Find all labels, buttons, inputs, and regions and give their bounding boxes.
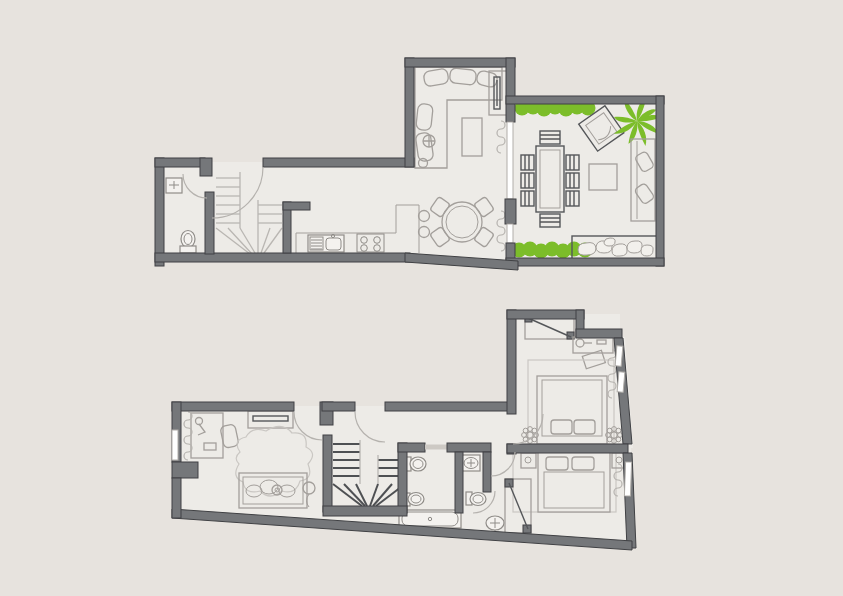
terrace-wall bbox=[506, 258, 664, 266]
terrace-wall bbox=[506, 96, 664, 104]
terrace-wall bbox=[656, 96, 664, 266]
floor-plan-canvas bbox=[0, 0, 843, 596]
wall bbox=[398, 443, 425, 452]
wall-pier bbox=[172, 462, 198, 478]
wall bbox=[155, 158, 205, 167]
door-stub bbox=[200, 158, 212, 176]
stair-wall bbox=[283, 202, 310, 210]
bedroom2-bed bbox=[538, 452, 610, 512]
stair-wall bbox=[323, 435, 332, 512]
wall bbox=[172, 402, 294, 411]
wall bbox=[385, 402, 515, 411]
master-bed bbox=[537, 376, 607, 444]
wall bbox=[576, 329, 622, 338]
wc-wall bbox=[205, 192, 214, 254]
wall-hung-toilet bbox=[466, 492, 486, 506]
kids-window bbox=[172, 430, 178, 460]
wall bbox=[322, 402, 355, 411]
wall bbox=[507, 444, 628, 453]
bedroom2-window bbox=[624, 462, 631, 496]
stair-wall bbox=[398, 443, 407, 513]
terrace-window bbox=[507, 122, 513, 199]
floor-plan-drawing bbox=[0, 0, 843, 596]
upper-floor-plan bbox=[155, 58, 664, 270]
wall bbox=[405, 58, 414, 167]
master-window bbox=[617, 372, 625, 392]
sliding-door-panel bbox=[505, 199, 516, 224]
wall bbox=[483, 452, 491, 492]
wall bbox=[155, 253, 410, 262]
wall bbox=[507, 310, 516, 414]
wall bbox=[455, 452, 463, 513]
lower-floor-plan bbox=[172, 310, 636, 550]
terrace-window bbox=[507, 224, 513, 243]
counter-washbasin bbox=[462, 455, 480, 471]
wall bbox=[172, 478, 181, 518]
master-window bbox=[615, 346, 623, 366]
wall bbox=[263, 158, 414, 167]
wall bbox=[506, 58, 515, 122]
stair-bottom-wall bbox=[323, 506, 407, 516]
wall bbox=[447, 443, 491, 452]
wall bbox=[155, 158, 164, 266]
wall bbox=[507, 310, 584, 319]
wall bbox=[405, 58, 515, 67]
